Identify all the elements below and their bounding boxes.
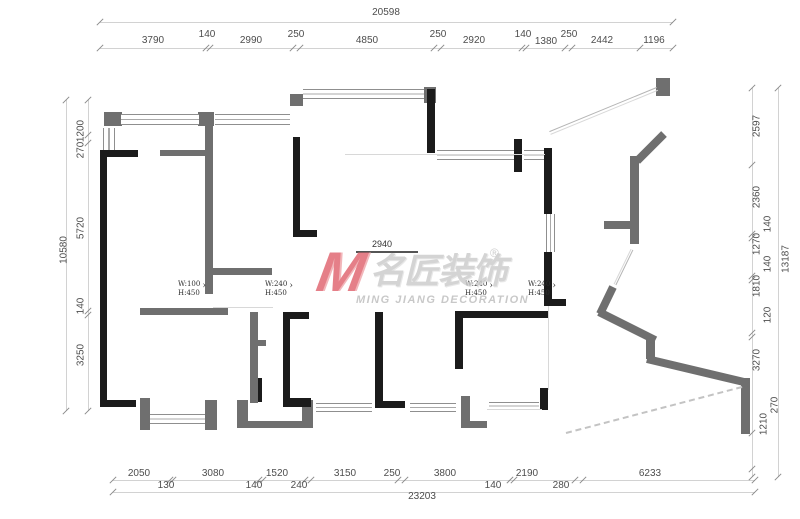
dim-bottom-2: 3080 [202,468,224,479]
wall-segment [455,311,548,318]
wall-segment-gray [461,421,487,428]
annotation-arrow-icon: › [489,281,493,292]
guide-line [213,307,273,308]
dim-left-3: 140 [76,298,87,315]
dim-bottom-total: 23203 [408,491,436,502]
window-annotation-2: W:240 H:450 › [265,280,287,298]
dimension-tick [84,407,91,414]
dim-right-0: 2597 [752,115,763,137]
window-annotation-4-width: W:240 [528,280,550,289]
opening-dimension-line [356,251,418,253]
dimension-line [88,100,89,411]
window-segment [103,128,115,151]
guide-line [345,154,545,155]
wall-segment [514,139,522,172]
dimension-tick [62,407,69,414]
wall-segment [544,252,552,306]
window-annotation-1-width: W:100 [178,280,200,289]
window-annotation-2-width: W:240 [265,280,287,289]
dim-right-7: 3270 [752,349,763,371]
wall-segment [283,398,311,407]
watermark-subtitle: MING JIANG DECORATION [356,294,529,306]
window-annotation-4: W:240 H:450 › [528,280,550,298]
wall-segment [375,401,405,408]
wall-segment-gray [140,308,228,315]
wall-segment-gray [634,131,667,164]
wall-segment-gray [250,312,258,403]
dim-bottom-3: 140 [246,480,263,491]
dim-right-8: 1210 [759,413,770,435]
dim-bottom-7: 250 [384,468,401,479]
wall-segment-gray [646,355,749,387]
dim-top-6: 2920 [463,35,485,46]
wall-segment-gray [250,340,266,346]
dim-right-4: 140 [763,256,774,273]
wall-segment [100,400,136,407]
dim-top-7: 140 [515,29,532,40]
dim-left-4: 3250 [76,344,87,366]
dim-bottom-4: 1520 [266,468,288,479]
wall-segment [544,148,552,214]
window-annotation-3-height: H:450 [465,289,487,298]
floor-plan-canvas: 20598 3790 140 2990 250 4850 250 2920 14… [0,0,800,519]
wall-segment [455,311,463,369]
guide-line [548,306,549,390]
dim-bottom-10: 2190 [516,468,538,479]
window-annotation-3: W:240 H:450 › [465,280,487,298]
window-segment [150,414,206,424]
wall-segment [293,137,300,237]
dim-bottom-5: 240 [291,480,308,491]
registered-trademark-icon: ® [490,246,499,260]
wall-segment-gray [656,78,670,96]
watermark: M 名匠装饰 ® MING JIANG DECORATION [318,238,538,318]
wall-segment-gray [604,221,632,229]
window-annotation-1-height: H:450 [178,289,200,298]
wall-segment-gray [290,94,303,106]
wall-segment [375,312,383,408]
dim-right-5: 1810 [752,275,763,297]
window-segment [614,249,634,285]
dim-bottom-11: 280 [553,480,570,491]
window-annotation-4-height: H:450 [528,289,550,298]
wall-segment-gray [630,156,639,230]
dim-left-2: 5720 [76,217,87,239]
wall-segment-gray [140,398,150,430]
dimension-tick [751,476,758,483]
dimension-tick [669,18,676,25]
opening-dimension-label: 2940 [372,239,392,249]
window-annotation-1: W:100 H:450 › [178,280,200,298]
dim-right-1: 2360 [752,186,763,208]
dim-right-total: 13187 [781,245,792,273]
window-segment [546,214,555,252]
wall-segment-gray [205,112,213,294]
dim-bottom-6: 3150 [334,468,356,479]
dimension-line [113,480,755,481]
dim-right-2: 140 [763,216,774,233]
dim-bottom-9: 140 [485,480,502,491]
window-segment [215,114,290,125]
dim-top-4: 4850 [356,35,378,46]
wall-segment [107,150,138,157]
dim-top-total: 20598 [372,7,400,18]
window-annotation-2-height: H:450 [265,289,287,298]
wall-segment [427,89,435,153]
annotation-arrow-icon: › [202,281,206,292]
annotation-arrow-icon: › [552,281,556,292]
dim-bottom-0: 2050 [128,468,150,479]
wall-segment-gray [205,268,272,275]
wall-segment-gray [630,228,639,244]
window-segment [549,87,658,135]
dim-top-5: 250 [430,29,447,40]
dim-top-9: 250 [561,29,578,40]
window-segment [524,150,544,160]
wall-segment [283,312,309,319]
dim-top-1: 140 [199,29,216,40]
wall-segment [293,230,317,237]
dim-left-total: 10580 [59,236,70,264]
wall-segment-gray [104,112,122,126]
dim-top-2: 2990 [240,35,262,46]
wall-segment-gray [597,308,657,343]
window-segment [410,403,456,412]
annotation-arrow-icon: › [289,281,293,292]
window-segment [437,150,515,160]
window-segment [316,403,372,412]
dim-top-3: 250 [288,29,305,40]
dim-left-0: 1200 [76,120,87,142]
dim-left-1: 270 [76,142,87,159]
dim-top-10: 2442 [591,35,613,46]
window-segment [121,114,199,125]
dim-right-3: 1270 [752,233,763,255]
wall-segment-gray [205,400,217,430]
dim-right-6: 120 [763,307,774,324]
dim-bottom-12: 6233 [639,468,661,479]
dim-bottom-8: 3800 [434,468,456,479]
dim-right-9: 270 [770,397,781,414]
guide-line [487,409,542,410]
wall-segment-gray [160,150,206,156]
dimension-tick [751,488,758,495]
wall-segment [100,150,107,407]
dimension-line [100,22,673,23]
window-annotation-3-width: W:240 [465,280,487,289]
wall-segment [544,299,566,306]
dim-bottom-1: 130 [158,480,175,491]
wall-segment [283,312,290,407]
dim-top-8: 1380 [535,36,557,47]
balcony-hatch-line [566,386,743,434]
dimension-tick [669,44,676,51]
wall-segment [540,388,548,410]
window-segment [303,89,424,99]
dimension-line [100,48,673,49]
dim-top-11: 1196 [643,35,665,46]
dim-top-0: 3790 [142,35,164,46]
dimension-tick [774,473,781,480]
dimension-line [778,88,779,477]
